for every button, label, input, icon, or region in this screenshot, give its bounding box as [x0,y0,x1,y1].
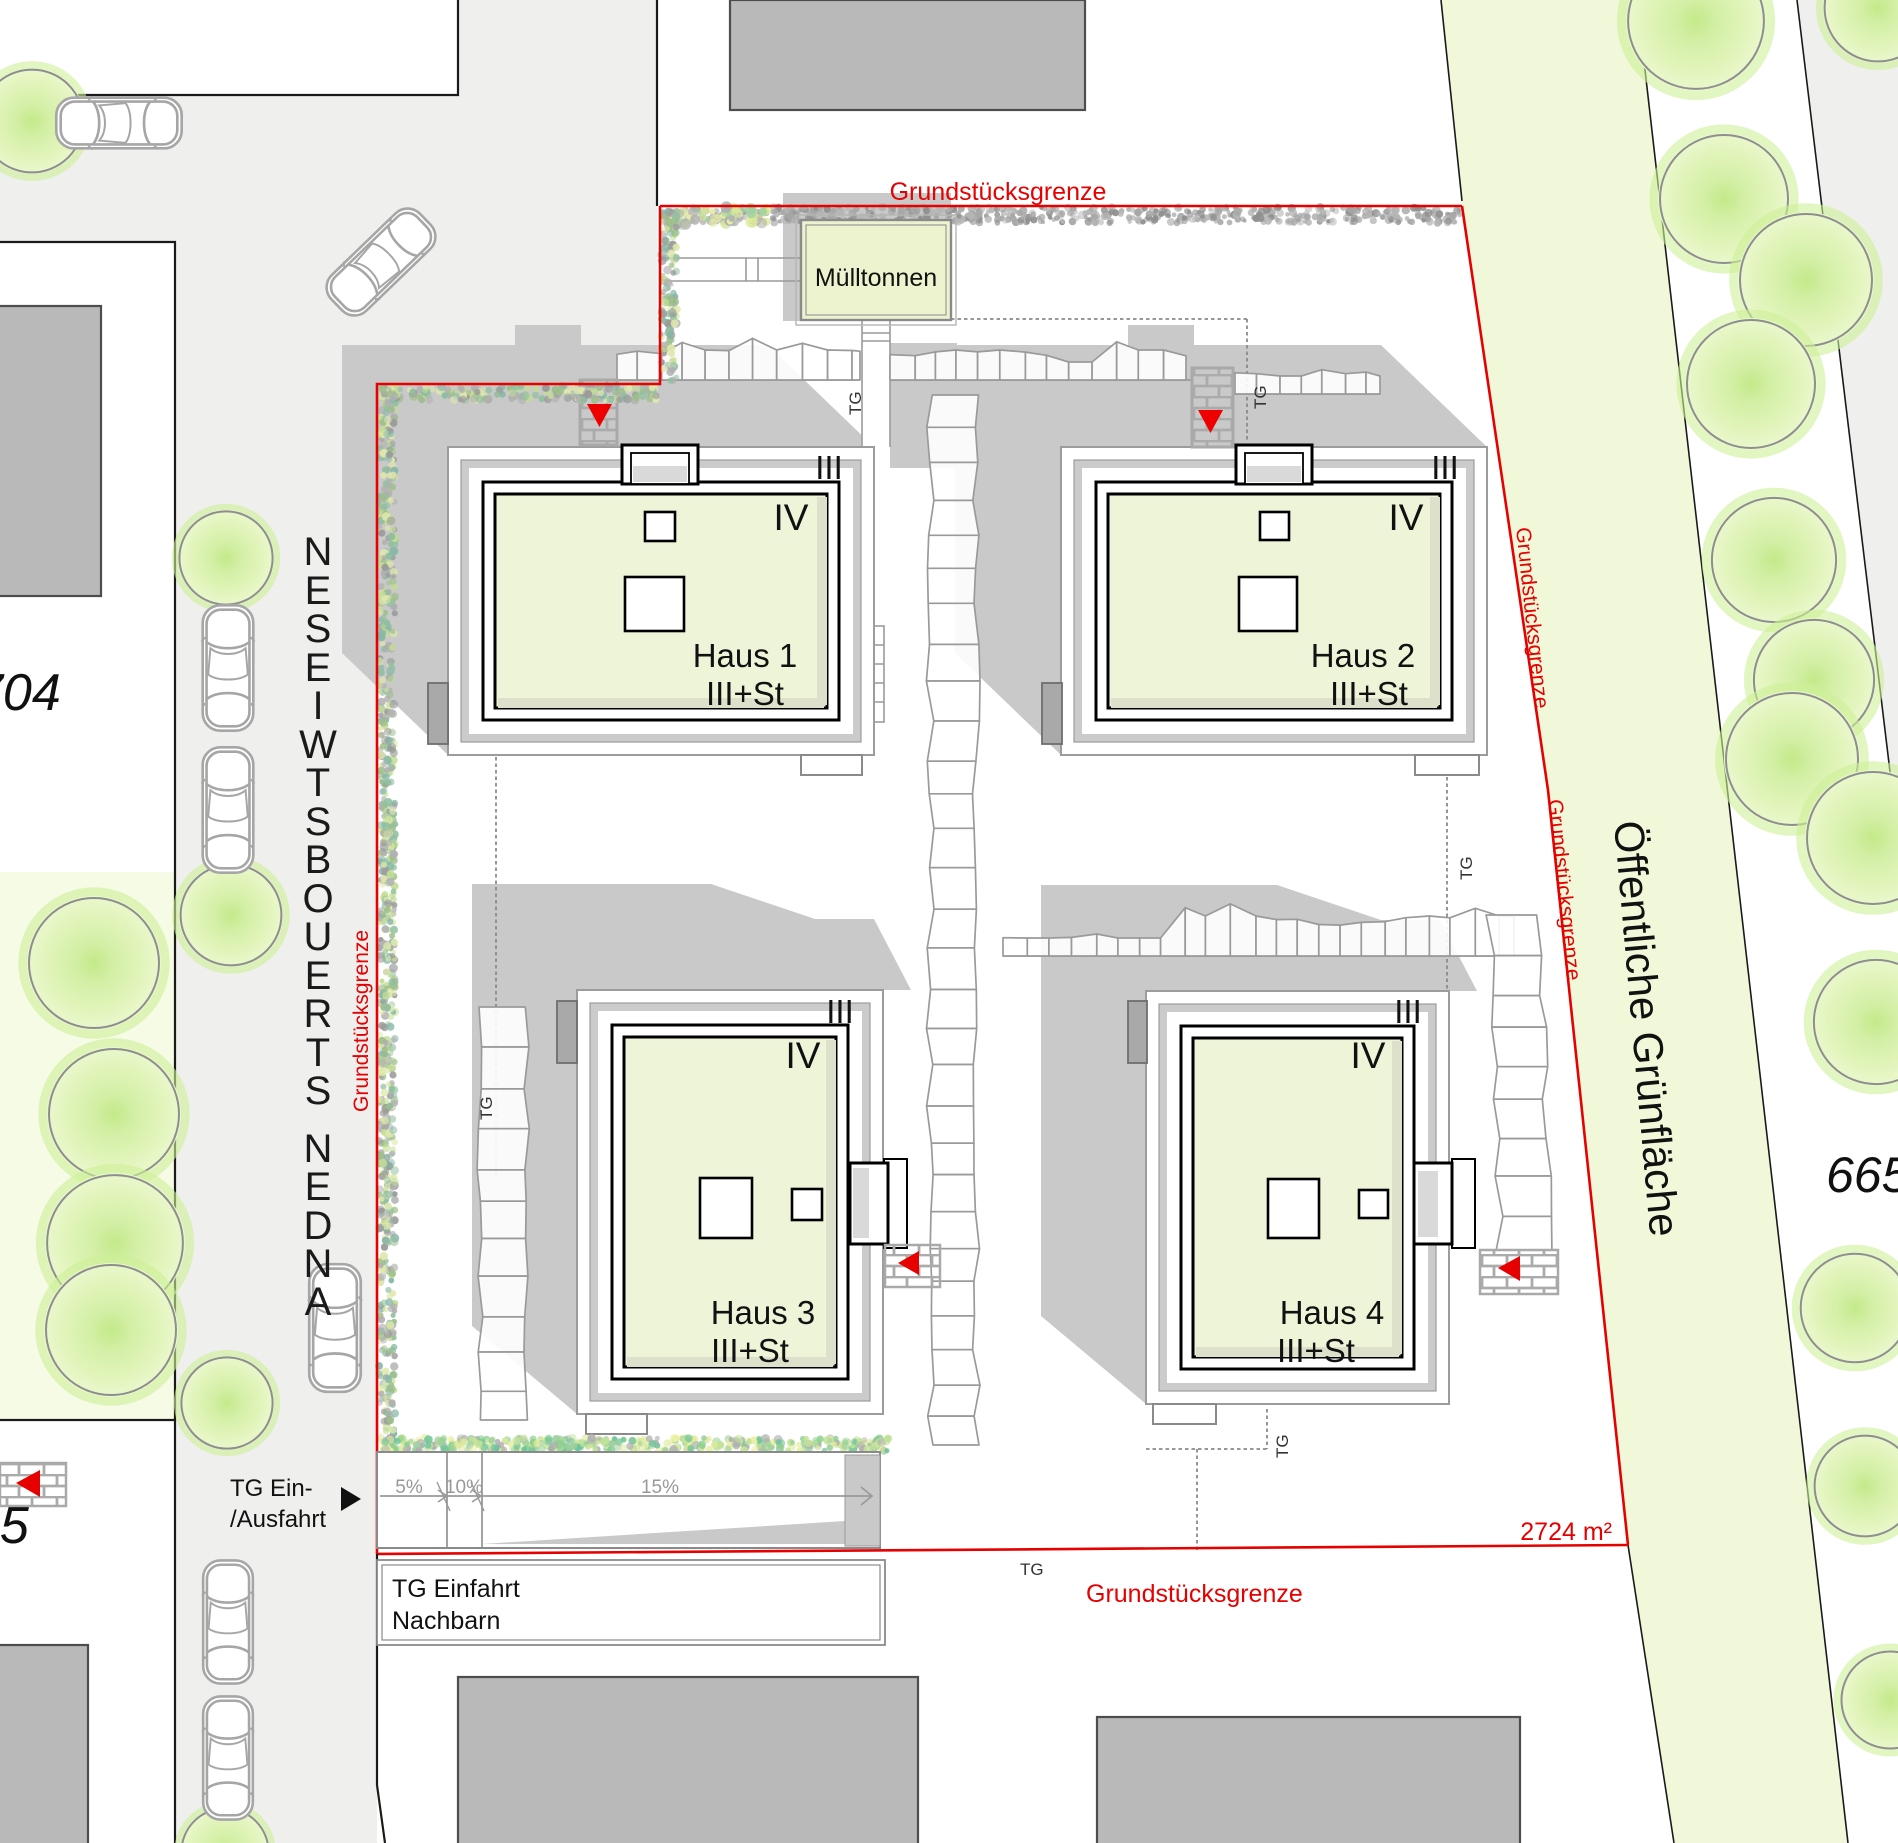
svg-text:IV: IV [774,497,809,538]
svg-text:A: A [305,1280,332,1324]
svg-text:Haus 4: Haus 4 [1280,1294,1385,1331]
svg-text:R: R [304,992,333,1036]
svg-text:T: T [306,761,330,805]
svg-text:III: III [826,993,854,1030]
svg-text:B: B [305,838,332,882]
svg-text:IV: IV [786,1035,821,1076]
svg-text:III+St: III+St [1330,675,1408,712]
svg-text:5%: 5% [395,1477,423,1498]
svg-text:TG: TG [1251,385,1270,409]
svg-text:Grundstücksgrenze: Grundstücksgrenze [890,178,1107,206]
svg-text:TG Einfahrt: TG Einfahrt [392,1575,520,1603]
svg-text:S: S [305,1069,332,1113]
svg-text:N: N [304,530,333,574]
svg-text:Grundstücksgrenze: Grundstücksgrenze [1086,1580,1303,1608]
svg-text:Grundstücksgrenze: Grundstücksgrenze [350,930,373,1112]
svg-text:Haus 2: Haus 2 [1311,637,1416,674]
svg-text:TG: TG [846,391,865,415]
svg-text:TG: TG [1457,856,1476,880]
svg-text:III+St: III+St [1277,1332,1355,1369]
svg-text:Nachbarn: Nachbarn [392,1607,500,1635]
svg-text:TG: TG [1273,1434,1292,1458]
svg-text:IV: IV [1351,1035,1386,1076]
svg-text:IV: IV [1389,497,1424,538]
svg-text:/Ausfahrt: /Ausfahrt [230,1506,326,1533]
svg-text:III: III [815,449,843,486]
svg-text:I: I [312,684,323,728]
svg-text:2724 m²: 2724 m² [1520,1518,1612,1546]
svg-text:TG: TG [477,1096,496,1120]
svg-text:TG: TG [1020,1560,1044,1579]
svg-text:III: III [1431,449,1459,486]
svg-text:TG Ein-: TG Ein- [230,1475,313,1502]
svg-text:Haus 3: Haus 3 [711,1294,816,1331]
svg-text:665: 665 [1826,1147,1898,1203]
svg-text:U: U [304,915,333,959]
svg-text:III+St: III+St [706,675,784,712]
svg-text:10%: 10% [445,1477,483,1498]
svg-text:704: 704 [0,664,61,722]
svg-text:III: III [1394,993,1422,1030]
svg-text:Mülltonnen: Mülltonnen [815,264,937,292]
svg-text:Haus 1: Haus 1 [693,637,798,674]
svg-text:705: 705 [0,1497,30,1555]
svg-text:III+St: III+St [711,1332,789,1369]
svg-text:E: E [305,1165,332,1209]
svg-text:S: S [305,607,332,651]
svg-text:15%: 15% [641,1477,679,1498]
